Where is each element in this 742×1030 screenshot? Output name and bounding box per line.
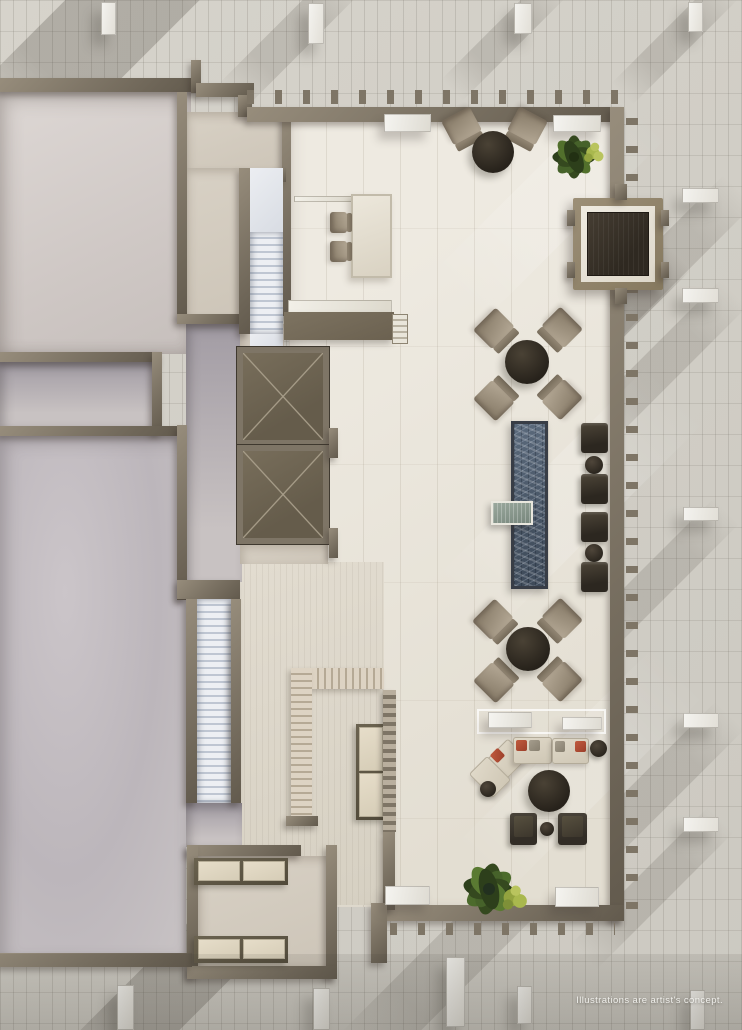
interior-corridor [186,803,242,847]
staircase [312,668,384,689]
bench-cushion [359,773,383,817]
water-feature-bench [491,501,533,525]
lounge-chair [581,512,608,542]
building-wall [177,314,244,324]
planter-bench [488,712,532,728]
building-wall [177,92,187,318]
side-table [585,544,603,562]
dining-chair [329,240,352,263]
roof-vent [308,3,324,44]
roof-vent [683,507,719,521]
building-wall [329,528,338,558]
building-wall [177,580,240,599]
paving-shadow-strip [0,954,742,1030]
building-wall [286,816,318,826]
coffee-table [528,770,570,812]
louver-screen [383,690,396,832]
kitchen-counter [284,312,394,340]
roof-vent [682,288,719,303]
building-wall [177,425,187,600]
potted-plant [446,858,532,920]
throw-pillow [555,741,565,752]
roof-vent [688,2,703,32]
building-wall [152,352,162,434]
bench-cushion [359,727,383,771]
armchair [558,813,587,845]
hot-tub-tab [615,288,627,304]
throw-pillow [516,740,527,751]
staircase [291,668,312,818]
planter-bench [384,114,431,132]
interior-corridor [185,168,240,324]
hot-tub-tab [615,184,627,200]
guard-posts [247,90,624,104]
throw-pillow [529,740,540,751]
hot-tub-tab [661,262,669,278]
planter-bench [555,887,599,907]
interior-corridor [240,544,328,564]
dining-table [351,194,392,278]
hot-tub-tab [567,210,575,226]
rooftop-floorplan-rendering: Illustrations are artist's concept. [0,0,742,1030]
elevator-shaft [237,347,329,446]
interior-room [0,362,152,426]
roof-vent [101,2,116,35]
bench-cushion [243,861,285,881]
side-table [585,456,603,474]
throw-pillow [575,741,586,752]
side-table [590,740,607,757]
roof-vent [683,817,719,832]
bench-cushion [198,861,240,881]
round-table [472,131,514,173]
armchair [510,813,537,845]
kitchen-cabinet [392,314,408,344]
building-wall [0,352,162,362]
stair-landing [250,168,283,232]
building-wall [282,108,291,316]
building-wall [0,78,196,92]
kitchen-shelf [294,196,352,202]
staircase [250,232,283,334]
interior-room [0,92,191,354]
interior-room [0,436,186,956]
building-wall [186,599,197,803]
building-wall [329,428,338,458]
disclaimer-text: Illustrations are artist's concept. [576,995,723,1006]
building-wall [0,426,178,436]
hot-tub-tab [567,262,575,278]
elevator-shaft [237,445,329,544]
roof-vent [683,713,719,728]
planter-bench [385,886,430,905]
building-wall [239,168,250,334]
lounge-chair [581,423,608,453]
hot-tub-tab [661,210,669,226]
side-table [480,781,496,797]
interior-corridor [186,324,242,582]
potted-plant [538,128,610,186]
dining-chair [329,211,352,234]
roof-vent [514,3,532,34]
staircase [197,599,231,803]
building-wall [187,845,301,856]
lounge-chair [581,562,608,592]
roof-vent [682,188,719,203]
round-table [505,340,549,384]
hot-tub-water [587,212,649,276]
round-table [506,627,550,671]
guard-posts [390,923,615,935]
building-wall [231,599,241,803]
planter-bench [562,717,602,730]
lounge-chair [581,474,608,504]
side-table [540,822,554,836]
